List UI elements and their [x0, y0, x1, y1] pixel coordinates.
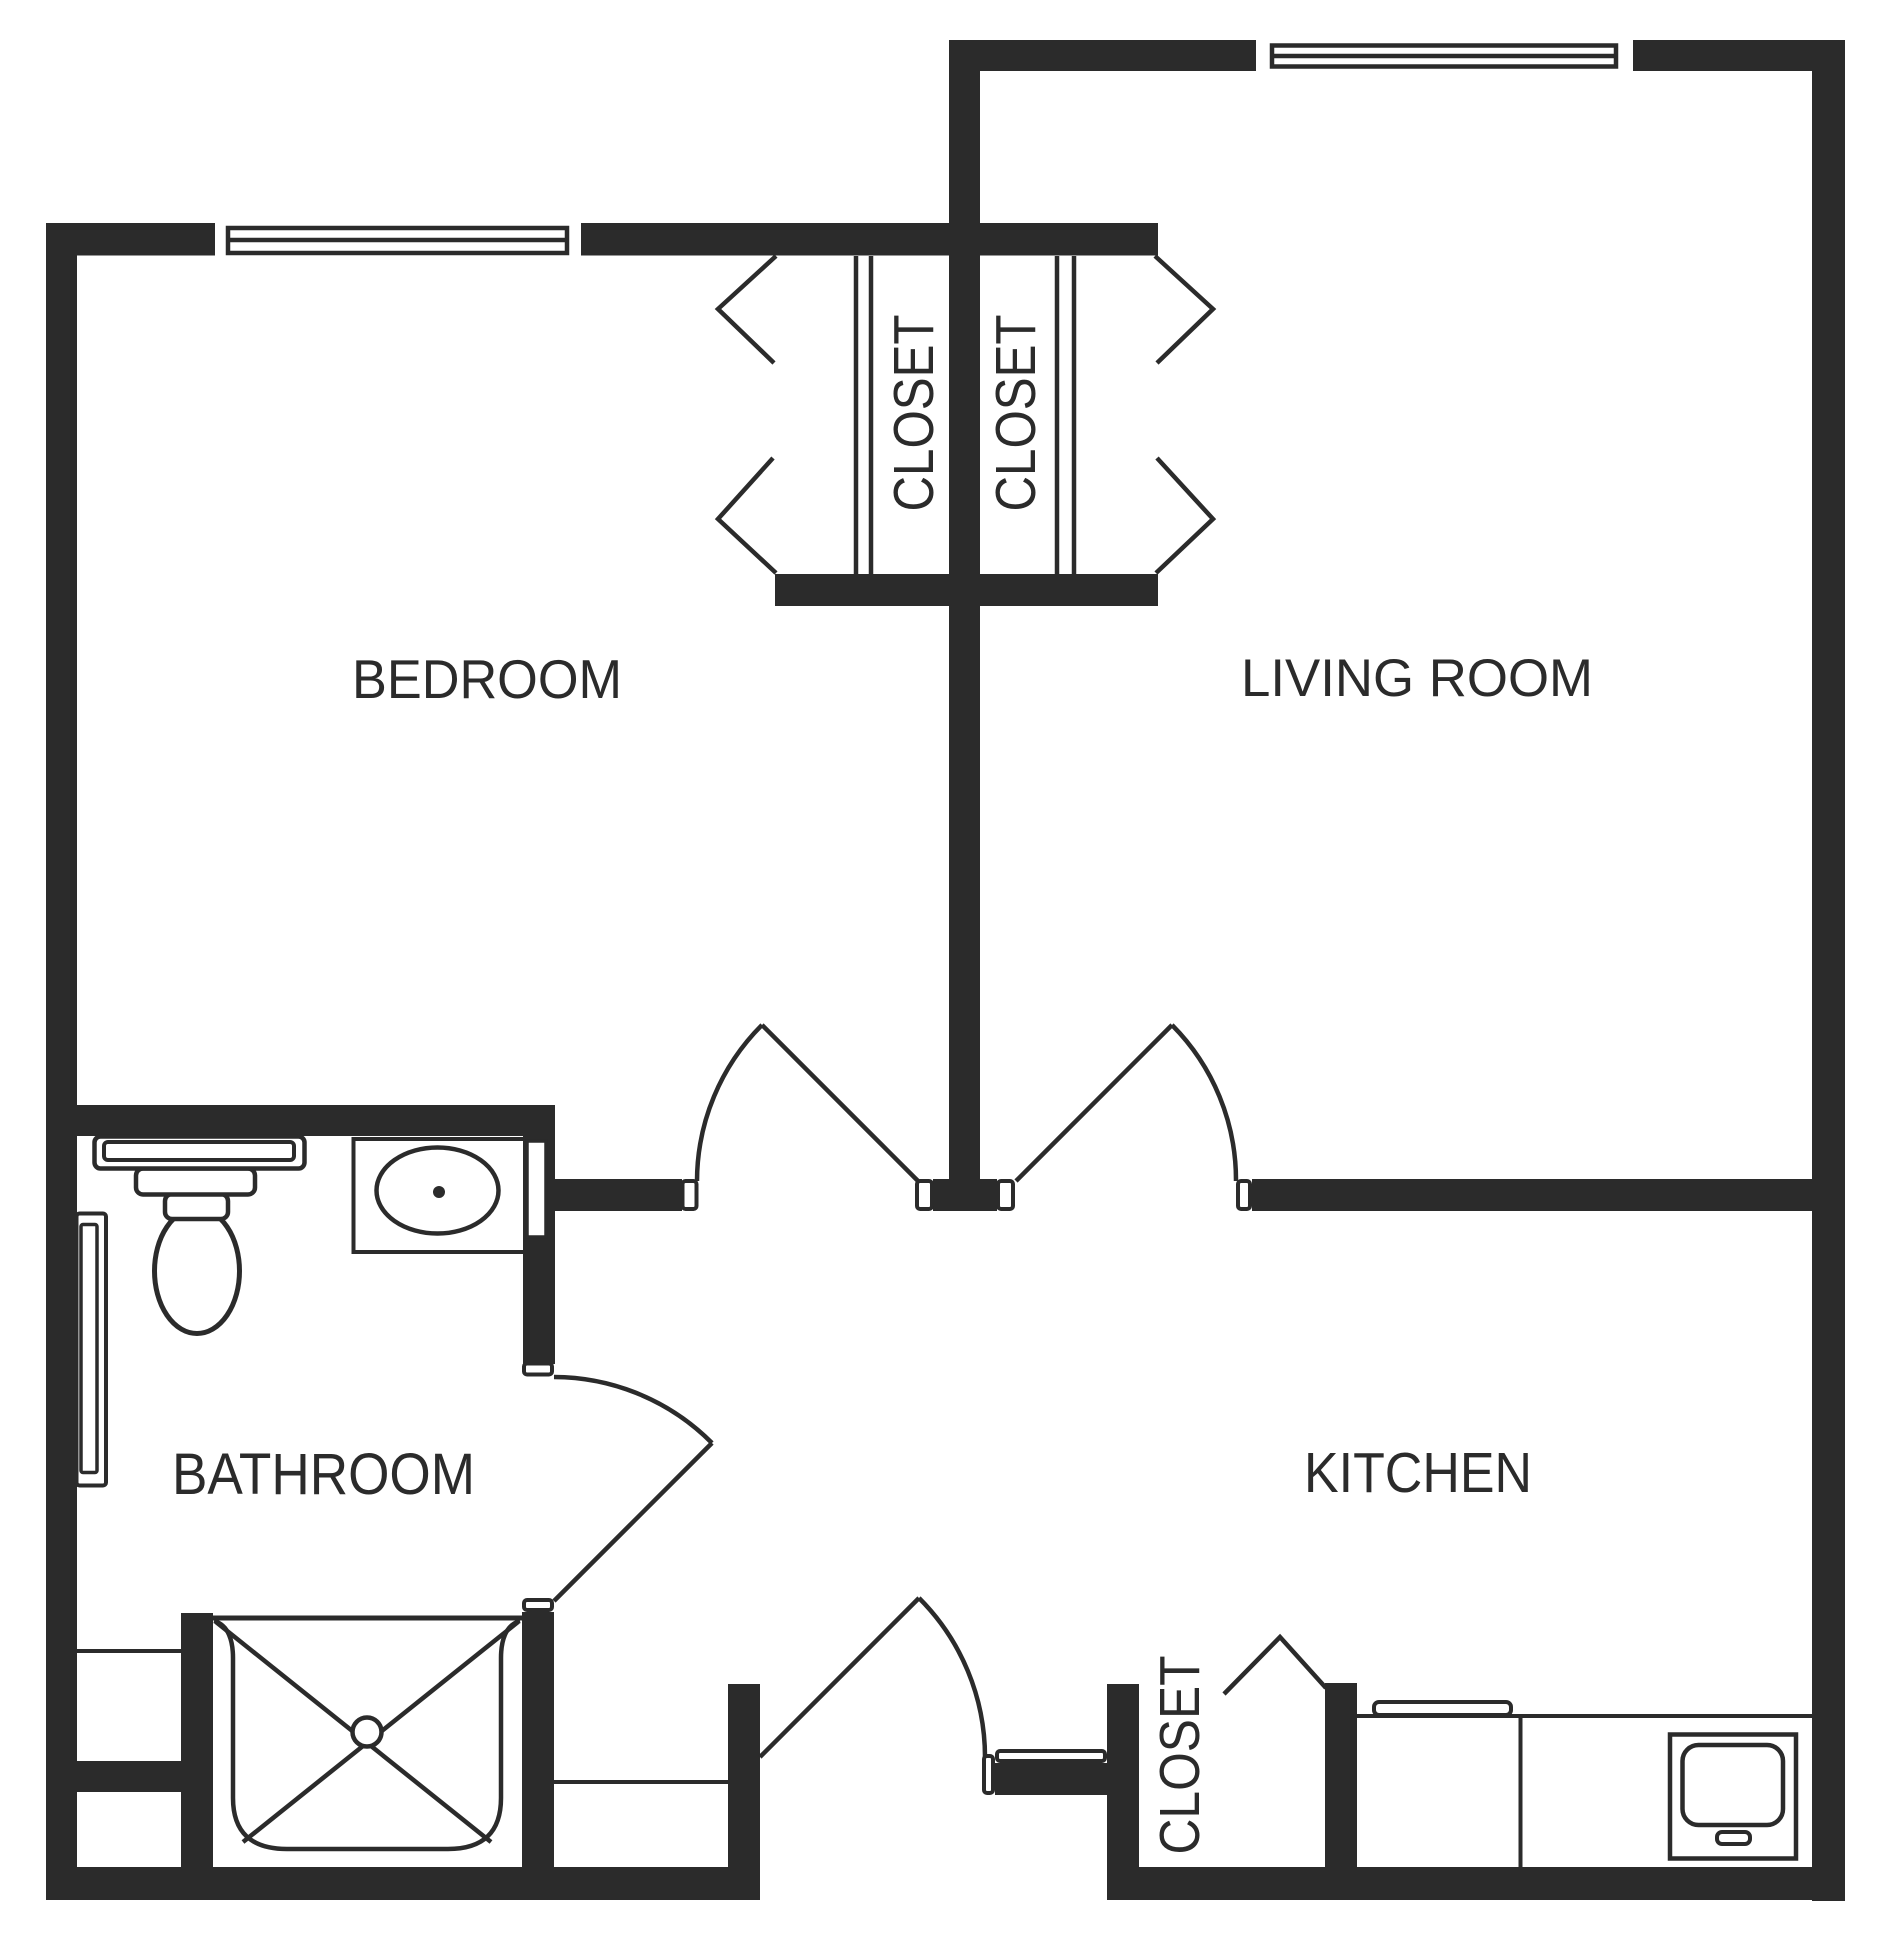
- svg-text:BATHROOM: BATHROOM: [172, 1442, 475, 1507]
- svg-text:CLOSET: CLOSET: [1148, 1656, 1212, 1855]
- svg-text:LIVING ROOM: LIVING ROOM: [1241, 649, 1593, 708]
- svg-text:CLOSET: CLOSET: [882, 315, 946, 512]
- svg-text:BEDROOM: BEDROOM: [352, 648, 622, 710]
- svg-text:CLOSET: CLOSET: [984, 315, 1048, 512]
- svg-text:KITCHEN: KITCHEN: [1304, 1441, 1532, 1505]
